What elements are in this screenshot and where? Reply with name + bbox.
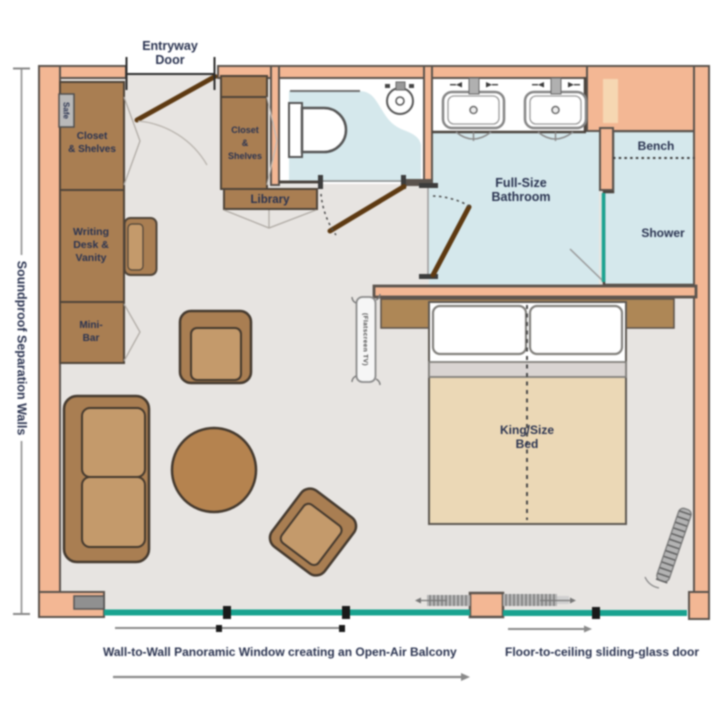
svg-text:Vanity: Vanity bbox=[76, 252, 107, 264]
svg-text:& Shelves: & Shelves bbox=[68, 144, 116, 155]
svg-text:King/Size: King/Size bbox=[500, 423, 554, 437]
svg-text:Floor-to-ceiling sliding-glass: Floor-to-ceiling sliding-glass door bbox=[505, 645, 699, 659]
svg-text:Shelves: Shelves bbox=[228, 151, 262, 161]
svg-text:Bed: Bed bbox=[516, 437, 539, 451]
svg-text:Safe: Safe bbox=[62, 102, 71, 119]
svg-text:Door: Door bbox=[155, 53, 184, 67]
svg-text:Soundproof Separation Walls: Soundproof Separation Walls bbox=[15, 261, 29, 436]
svg-text:Library: Library bbox=[251, 194, 291, 206]
svg-text:Closet: Closet bbox=[77, 131, 108, 142]
svg-text:Mini-: Mini- bbox=[79, 320, 102, 331]
svg-text:&: & bbox=[242, 138, 249, 148]
svg-text:Writing: Writing bbox=[73, 226, 109, 238]
svg-text:Bathroom: Bathroom bbox=[491, 190, 550, 204]
svg-text:Shower: Shower bbox=[641, 226, 685, 240]
svg-text:Wall-to-Wall Panoramic Window: Wall-to-Wall Panoramic Window creating a… bbox=[103, 645, 457, 659]
svg-text:Desk &: Desk & bbox=[73, 239, 109, 251]
svg-text:Full-Size: Full-Size bbox=[495, 176, 546, 190]
svg-text:(Flatscreen TV): (Flatscreen TV) bbox=[362, 313, 369, 366]
svg-text:Bench: Bench bbox=[638, 139, 675, 153]
svg-text:Closet: Closet bbox=[231, 125, 259, 135]
svg-text:Entryway: Entryway bbox=[142, 39, 198, 53]
svg-text:Bar: Bar bbox=[83, 333, 100, 344]
